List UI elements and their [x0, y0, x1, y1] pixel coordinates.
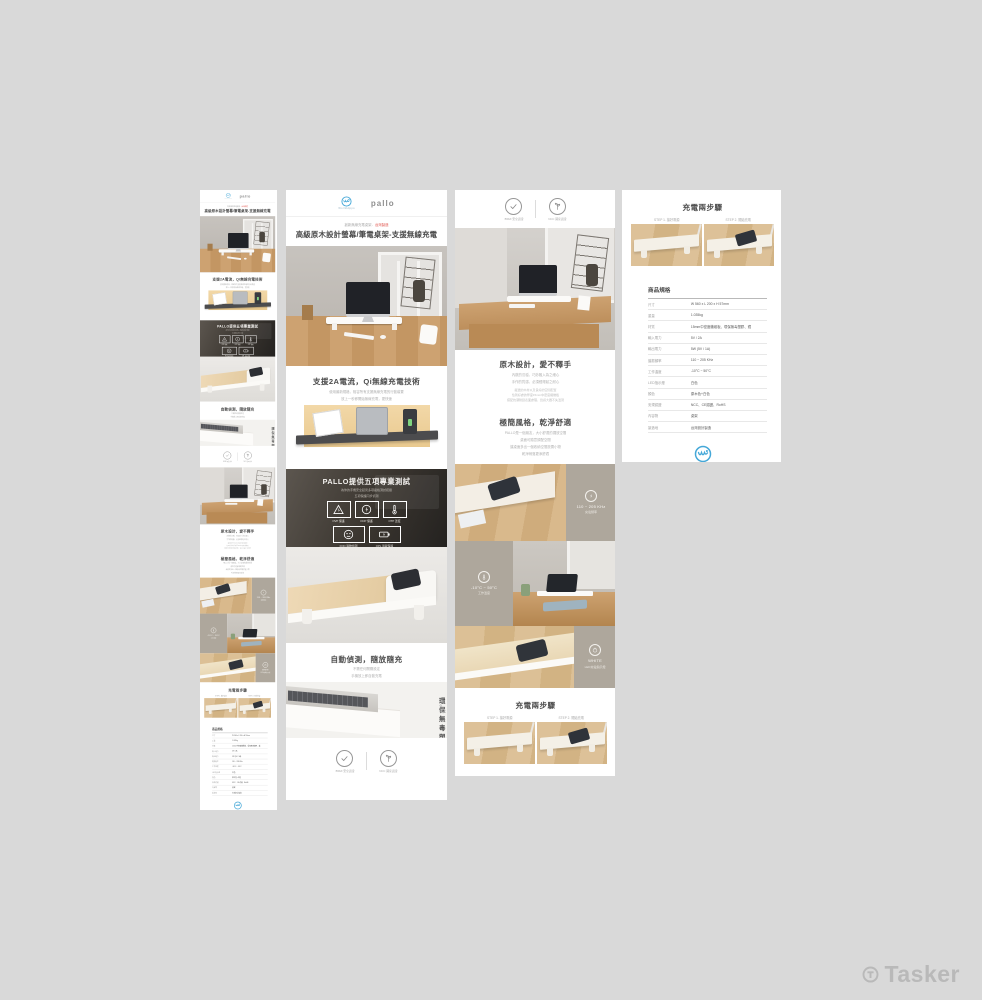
wood-line2: 手作的質感，必須經得起之耐心 — [455, 379, 615, 384]
keyboard — [225, 503, 237, 505]
led-value: WHITE — [588, 658, 602, 663]
stand-leg — [474, 748, 480, 756]
step2-caption: STEP 2. 開始充電 — [536, 715, 608, 720]
section-charging-steps: 充電兩步驟 STEP 1. 接好電源 STEP 2. 開始充電 — [455, 688, 615, 774]
photo-desk-laptop — [513, 541, 615, 626]
mouse — [244, 258, 247, 260]
section-minimal-style: 極簡風格，乾淨舒適 PALLO是一個朋友，大小舒適的擺放空間 桌面可隨意調配空間… — [200, 552, 275, 578]
photo-stand-closeup — [200, 577, 252, 613]
steps-photos — [464, 722, 607, 764]
pen-holder — [207, 244, 212, 251]
steps-photos — [631, 224, 774, 266]
worldhippo-logo: WorldHippo — [224, 193, 232, 200]
ncc-cert-icon — [549, 198, 566, 215]
minimal-line3: 讓桌面多出一個收納空間放置小物 — [455, 444, 615, 449]
stand-leg — [547, 748, 553, 756]
badge-left: BSMI 安全認證 — [336, 750, 355, 773]
eco-sub: 安全．環保 — [271, 427, 274, 434]
minimal-line4: 乾淨俐落更添舒適 — [200, 571, 275, 573]
stand-leg — [260, 384, 265, 391]
stand-leg — [243, 710, 246, 714]
auto-line1: 不需任何開關設定 — [200, 412, 275, 414]
step2-photo — [238, 698, 271, 718]
minimal-line4: 乾淨俐落更添舒適 — [455, 451, 615, 456]
artboard-page-bottom: 充電兩步驟 STEP 1. 接好電源 STEP 2. 開始充電 商品規格 尺寸W… — [622, 190, 781, 462]
section-wood-design: 原木設計，愛不釋手 內斂的沉穩，巧妙融入為之細心 手作的質感，必須經得起之耐心 … — [200, 524, 275, 551]
badge-left-caption: BSMI 安全認證 — [336, 769, 355, 773]
stand-leg — [207, 385, 212, 392]
laptop — [546, 574, 578, 592]
keyboard — [509, 304, 535, 308]
led-value: WHITE — [262, 668, 268, 670]
wood-line2: 手作的質感，必須經得起之耐心 — [200, 538, 275, 540]
spec-table: 商品規格 尺寸W 560 x L 200 x H 57mm 重量1.035kg … — [200, 722, 275, 795]
mouse — [380, 335, 386, 339]
wood-title: 原木設計，愛不釋手 — [200, 529, 275, 534]
spec-row: 重量1.035kg — [648, 310, 767, 321]
imac-screen — [346, 282, 390, 317]
section-five-tests: PALLO提供五項專業測試 為你的手機安全起見多項嚴格測試把關 五項保護同步偵測… — [200, 320, 275, 356]
section-charging-steps: 充電兩步驟 STEP 1. 接好電源 STEP 2. 開始充電 — [622, 190, 781, 276]
white-router — [419, 324, 438, 345]
hero-text-block: 創新無線充電桌架．台灣製造 高級原木設計螢幕/筆電桌架-支援無線充電 — [286, 217, 447, 246]
badge-left-caption: BSMI 安全認證 — [223, 460, 232, 462]
white-router — [262, 253, 271, 263]
auto-line2: 手機放上即自動充電 — [200, 416, 275, 418]
frequency-label: 充電頻率 — [261, 599, 267, 601]
artboard-page-middle: BSMI 安全認證 NCC 國家認證 — [455, 190, 615, 776]
step1-caption: STEP 1. 接好電源 — [631, 217, 703, 222]
led-label: LED充電指示燈 — [585, 665, 606, 669]
grid-row-frequency: 110 ~ 205 KHz 充電頻率 — [200, 577, 275, 613]
auto-line2: 手機放上即自動充電 — [286, 673, 447, 678]
wood-paragraph: 嚴選的木材以及良好的空間配置 恰到好處的厚度15mm中密度纖維板 搭配抗潮耐刮表… — [200, 542, 275, 549]
minimal-line1: PALLO是一個朋友，大小舒適的擺放空間 — [455, 430, 615, 435]
section-2a-line1: 使用最新規格，相容所有支援無線充電的行動裝置 — [200, 283, 275, 285]
person-silhouette — [586, 264, 598, 286]
worldhippo-logo: WorldHippo — [338, 196, 355, 211]
minimal-line2: 桌面可隨意調配空間 — [455, 437, 615, 442]
grid-row-led: WHITE LED充電指示燈 — [455, 626, 615, 688]
tablet — [356, 407, 388, 435]
step1-caption: STEP 1. 接好電源 — [464, 715, 536, 720]
spec-header: 商品規格 — [648, 286, 767, 299]
thermometer-icon — [211, 628, 217, 634]
badge-right: NCC 國家認證 — [244, 451, 252, 462]
tests-row-2: FOD 異物偵測 OPL 過載保護 — [200, 347, 275, 357]
frequency-value: 110 ~ 205 KHz — [577, 504, 606, 509]
step1-photo — [464, 722, 535, 764]
notebook — [212, 292, 227, 305]
spec-row: 尺寸W 560 x L 200 x H 57mm — [648, 299, 767, 310]
spec-row: 輸入電力5V / 2A — [648, 333, 767, 344]
certification-badges-row: BSMI 安全認證 NCC 國家認證 — [455, 190, 615, 228]
battery-led — [408, 419, 412, 426]
photo-frame — [257, 499, 263, 506]
step1-photo — [204, 698, 237, 718]
wood-para3: 搭配抗潮耐刮表面處理，質感大器不失溫潤 — [455, 398, 615, 402]
tablet — [233, 291, 248, 304]
stand-leg — [684, 246, 690, 254]
laptop-photo-eco: 環保無毒塑膠 安全．環保 — [200, 420, 275, 446]
section-minimal-style: 極簡風格，乾淨舒適 PALLO是一個朋友，大小舒適的擺放空間 桌面可隨意調配空間… — [455, 408, 615, 463]
stand-leg — [392, 323, 397, 330]
section-2a-charging: 支援2A電流，Qi無線充電技術 使用最新規格，相容所有支援無線充電的行動裝置 放… — [200, 272, 275, 320]
badge-right: NCC 國家認證 — [379, 750, 397, 773]
photo-stand-closeup — [455, 464, 566, 541]
pen-holder — [302, 305, 313, 320]
hero-photo-desk-imac — [286, 246, 447, 366]
fod-face-icon — [222, 347, 237, 355]
power-icon — [589, 644, 601, 656]
hero-tagline: 創新無線充電桌架．台灣製造 — [202, 205, 273, 207]
battery-led — [257, 297, 259, 300]
stand-leg — [641, 250, 647, 258]
grid-row-led: WHITE LED充電指示燈 — [200, 653, 275, 682]
test-item-opl: OPL 過載保護 — [239, 347, 254, 357]
steps-title: 充電兩步驟 — [464, 700, 607, 711]
ncc-cert-icon — [244, 451, 252, 459]
opl-battery-icon — [239, 347, 254, 355]
worldhippo-logo-icon — [694, 445, 712, 462]
section-2a-charging: 支援2A電流，Qi無線充電技術 使用最新規格，相容所有支援無線充電的行動裝置 放… — [286, 366, 447, 469]
window-glow — [242, 323, 272, 339]
stand-leg — [250, 252, 252, 255]
shelf-illustration — [286, 401, 447, 465]
wood-paragraph: 嚴選的木材以及良好的空間配置 恰到好處的厚度15mm中密度纖維板 搭配抗潮耐刮表… — [455, 388, 615, 403]
thumbnail-page: WorldHippo pallo 創新無線充電桌架．台灣製造 高級原木設計螢幕/… — [200, 190, 275, 810]
minimal-line1: PALLO是一個朋友，大小舒適的擺放空間 — [200, 562, 275, 564]
steps-title: 充電兩步驟 — [204, 688, 271, 693]
hero-tagline-red: 台灣製造 — [242, 205, 248, 207]
led-label: LED充電指示燈 — [261, 671, 271, 673]
design-canvas: WorldHippo pallo 創新無線充電桌架．台灣製造 高級原木設計螢幕/… — [0, 0, 982, 1000]
stand-leg — [756, 246, 762, 254]
spec-row: 材質15mm中密度纖維板、環保無毒塑膠、鐵 — [648, 321, 767, 332]
window-mullion — [252, 223, 253, 251]
spec-row: 輸出電力5W (5V / 1A) — [648, 344, 767, 355]
desk-front — [207, 512, 268, 523]
temperature-value: -10°C ~ 50°C — [471, 585, 497, 590]
section-2a-title: 支援2A電流，Qi無線充電技術 — [286, 376, 447, 387]
spec-row: 諧振頻率110 ~ 205 KHz — [648, 355, 767, 366]
test-item-ovp: OVP 保護 — [219, 335, 230, 345]
tasker-watermark: Tasker — [860, 961, 960, 988]
page-header: WorldHippo pallo — [200, 190, 275, 203]
step2-caption: STEP 2. 開始充電 — [238, 695, 271, 697]
spec-row: 製造地台灣設計製造 — [648, 422, 767, 433]
section-auto-detect: 自動偵測，隨放隨充 不需任何開關設定 手機放上即自動充電 — [286, 643, 447, 683]
laptop-photo-eco: 環保無毒塑膠 安全．環保 — [286, 682, 447, 738]
badge-divider — [535, 200, 536, 218]
person-silhouette — [259, 232, 265, 242]
grid-row-temperature: -10°C ~ 50°C 工作溫度 — [200, 613, 275, 653]
test-item-opl: OPL 過載保護 — [369, 526, 401, 548]
badge-right-caption: NCC 國家認證 — [379, 769, 397, 773]
imac-screen — [230, 485, 248, 499]
photo-desk-front — [200, 467, 275, 524]
window-mullion — [397, 261, 400, 321]
test-item-fod: FOD 異物偵測 — [222, 347, 237, 357]
notebook — [312, 409, 343, 437]
stand-leg — [589, 744, 595, 752]
worldhippo-logo-label: WorldHippo — [224, 198, 232, 199]
section-auto-detect: 自動偵測，隨放隨充 不需任何開關設定 手機放上即自動充電 — [200, 401, 275, 419]
tasker-watermark-text: Tasker — [885, 961, 960, 988]
page-header: WorldHippo pallo — [286, 190, 447, 217]
plant — [231, 634, 235, 640]
stand-leg — [302, 609, 312, 624]
stand-leg — [332, 323, 337, 330]
opl-battery-icon — [369, 526, 401, 543]
tile-temperature: -10°C ~ 50°C 工作溫度 — [200, 613, 227, 653]
stand-leg — [209, 710, 212, 714]
temperature-label: 工作溫度 — [211, 637, 217, 639]
hero-tagline: 創新無線充電桌架．台灣製造 — [290, 222, 443, 227]
tile-led: WHITE LED充電指示燈 — [256, 653, 276, 682]
stand-leg — [714, 250, 720, 258]
spec-row: LED指示燈白色 — [648, 377, 767, 388]
hero-photo-desk-imac — [200, 216, 275, 272]
bolt-icon — [585, 490, 597, 502]
stand-leg — [221, 252, 223, 255]
steps-photos — [204, 698, 271, 718]
hero-title: 高級原木設計螢幕/筆電桌架-支援無線充電 — [202, 208, 273, 213]
stand-leg — [263, 708, 266, 712]
steps-title: 充電兩步驟 — [631, 202, 774, 213]
badge-right-caption: NCC 國家認證 — [244, 460, 252, 462]
pallo-wordmark: pallo — [371, 199, 395, 208]
plant — [521, 584, 530, 596]
thermometer-icon — [478, 571, 490, 583]
power-icon — [263, 662, 269, 668]
steps-captions: STEP 1. 接好電源 STEP 2. 開始充電 — [464, 715, 607, 720]
section-2a-line1: 使用最新規格，相容所有支援無線充電的行動裝置 — [286, 389, 447, 394]
tile-frequency: 110 ~ 205 KHz 充電頻率 — [566, 464, 615, 541]
spec-row: 安規認證NCC、CE認證、RoHS — [648, 400, 767, 411]
minimal-title: 極簡風格，乾淨舒適 — [200, 556, 275, 561]
tile-frequency: 110 ~ 205 KHz 充電頻率 — [252, 577, 275, 613]
step2-caption: STEP 2. 開始充電 — [703, 217, 775, 222]
temperature-label: 工作溫度 — [478, 591, 490, 595]
spec-row: 工作溫度-10°C ~ 50°C — [648, 366, 767, 377]
shelf-illustration — [200, 288, 275, 318]
steps-captions: STEP 1. 接好電源 STEP 2. 開始充電 — [631, 217, 774, 222]
tests-row-2: FOD 異物偵測 OPL 過載保護 — [286, 526, 447, 548]
tile-led: WHITE LED充電指示燈 — [574, 626, 615, 688]
wood-para2: 恰到好處的厚度15mm中密度纖維板 — [455, 393, 615, 397]
worldhippo-logo-icon — [341, 196, 352, 207]
imac-screen — [228, 233, 249, 249]
section-five-tests: PALLO提供五項專業測試 為你的手機安全起見多項嚴格測試把關 五項保護同步偵測… — [286, 469, 447, 547]
bolt-icon — [261, 590, 267, 596]
minimal-title: 極簡風格，乾淨舒適 — [455, 417, 615, 428]
safety-cert-icon — [224, 451, 232, 459]
artboard-thumbnail: WorldHippo pallo 創新無線充電桌架．台灣製造 高級原木設計螢幕/… — [200, 190, 277, 810]
footer-logo: WorldHippo 世 界 河 馬 — [622, 433, 781, 462]
auto-title: 自動偵測，隨放隨充 — [200, 406, 275, 411]
badge-divider — [366, 752, 367, 770]
steps-captions: STEP 1. 接好電源 STEP 2. 開始充電 — [204, 695, 271, 697]
minimal-line2: 桌面可隨意調配空間 — [200, 565, 275, 567]
ovp-warning-icon — [219, 335, 230, 343]
wood-line1: 內斂的沉穩，巧妙融入為之細心 — [455, 372, 615, 377]
hero-tagline-gray: 創新無線充電桌架． — [344, 223, 375, 227]
stand-leg — [517, 744, 523, 752]
monitor-stand — [507, 296, 571, 302]
badge-left: BSMI 安全認證 — [223, 451, 232, 462]
wood-line1: 內斂的沉穩，巧妙融入為之細心 — [200, 535, 275, 537]
step1-photo — [631, 224, 702, 266]
spec-row: 顏色原木色+白色 — [648, 389, 767, 400]
papers — [201, 599, 214, 608]
wood-title: 原木設計，愛不釋手 — [455, 359, 615, 370]
hero-tagline-red: 台灣製造 — [375, 223, 389, 227]
auto-line1: 不需任何開關設定 — [286, 666, 447, 671]
laptop — [243, 629, 258, 637]
fod-face-icon — [333, 526, 365, 543]
photo-stand-phone-closeup — [455, 626, 574, 688]
product-photo-stand-phone — [200, 357, 275, 402]
artboard-page-top: WorldHippo pallo 創新無線充電桌架．台灣製造 高級原木設計螢幕/… — [286, 190, 447, 800]
certification-badges-row: BSMI 安全認證 NCC 國家認證 — [200, 446, 275, 467]
tasker-logo-icon — [860, 964, 881, 985]
minimal-line3: 讓桌面多出一個收納空間放置小物 — [200, 568, 275, 570]
hero-title: 高級原木設計螢幕/筆電桌架-支援無線充電 — [290, 229, 443, 240]
person-silhouette — [413, 280, 425, 302]
window-glow — [375, 475, 439, 509]
section-wood-design: 原木設計，愛不釋手 內斂的沉穩，巧妙融入為之細心 手作的質感，必須經得起之耐心 … — [455, 350, 615, 408]
section-2a-title: 支援2A電流，Qi無線充電技術 — [200, 277, 275, 282]
worldhippo-logo-icon — [233, 801, 241, 809]
person-silhouette — [261, 484, 267, 494]
photo-desk-laptop — [227, 613, 275, 653]
safety-cert-icon — [336, 750, 353, 767]
footer-logo: WorldHippo 世 界 河 馬 — [200, 796, 275, 810]
wood-para1: 嚴選的木材以及良好的空間配置 — [455, 388, 615, 392]
imac-screen — [519, 265, 557, 296]
spec-row: 內容物桌架 — [648, 411, 767, 422]
safety-cert-icon — [505, 198, 522, 215]
badge-left: BSMI 安全認證 — [505, 198, 524, 221]
step2-photo — [704, 224, 775, 266]
tile-wall — [200, 467, 224, 504]
stand-leg — [414, 605, 424, 620]
photo-frame — [577, 295, 590, 310]
test-item-fod: FOD 異物偵測 — [333, 526, 365, 548]
auto-title: 自動偵測，隨放隨充 — [286, 654, 447, 665]
hero-tagline-gray: 創新無線充電桌架． — [227, 205, 241, 207]
photo-stand-phone-closeup — [200, 653, 256, 682]
stand-leg — [229, 708, 232, 712]
photo-desk-front — [455, 228, 615, 350]
badge-right: NCC 國家認證 — [548, 198, 566, 221]
section-charging-steps: 充電兩步驟 STEP 1. 接好電源 STEP 2. 開始充電 — [200, 682, 275, 722]
tile-temperature: -10°C ~ 50°C 工作溫度 — [455, 541, 513, 626]
ovp-warning-icon — [327, 501, 351, 518]
test-item-ovp: OVP 保護 — [327, 501, 351, 523]
frequency-label: 充電頻率 — [585, 510, 597, 514]
hero-text-block: 創新無線充電桌架．台灣製造 高級原木設計螢幕/筆電桌架-支援無線充電 — [200, 203, 275, 217]
product-photo-stand-phone — [286, 547, 447, 643]
ncc-cert-icon — [380, 750, 397, 767]
pallo-wordmark: pallo — [240, 194, 251, 198]
certification-badges-row: BSMI 安全認證 NCC 國家認證 — [286, 738, 447, 784]
worldhippo-logo-label: WorldHippo — [338, 208, 355, 211]
tile-wall — [455, 228, 507, 308]
spec-table: 商品規格 尺寸W 560 x L 200 x H 57mm 重量1.035kg … — [622, 276, 781, 433]
wood-para3: 搭配抗潮耐刮表面處理，質感大器不失溫潤 — [200, 547, 275, 549]
eco-sub: 安全．環保 — [439, 698, 445, 713]
grid-row-temperature: -10°C ~ 50°C 工作溫度 — [455, 541, 615, 626]
monitor-stand — [224, 499, 254, 502]
step2-photo — [537, 722, 608, 764]
step1-caption: STEP 1. 接好電源 — [204, 695, 237, 697]
desk-front — [469, 324, 599, 348]
grid-row-frequency: 110 ~ 205 KHz 充電頻率 — [455, 464, 615, 541]
